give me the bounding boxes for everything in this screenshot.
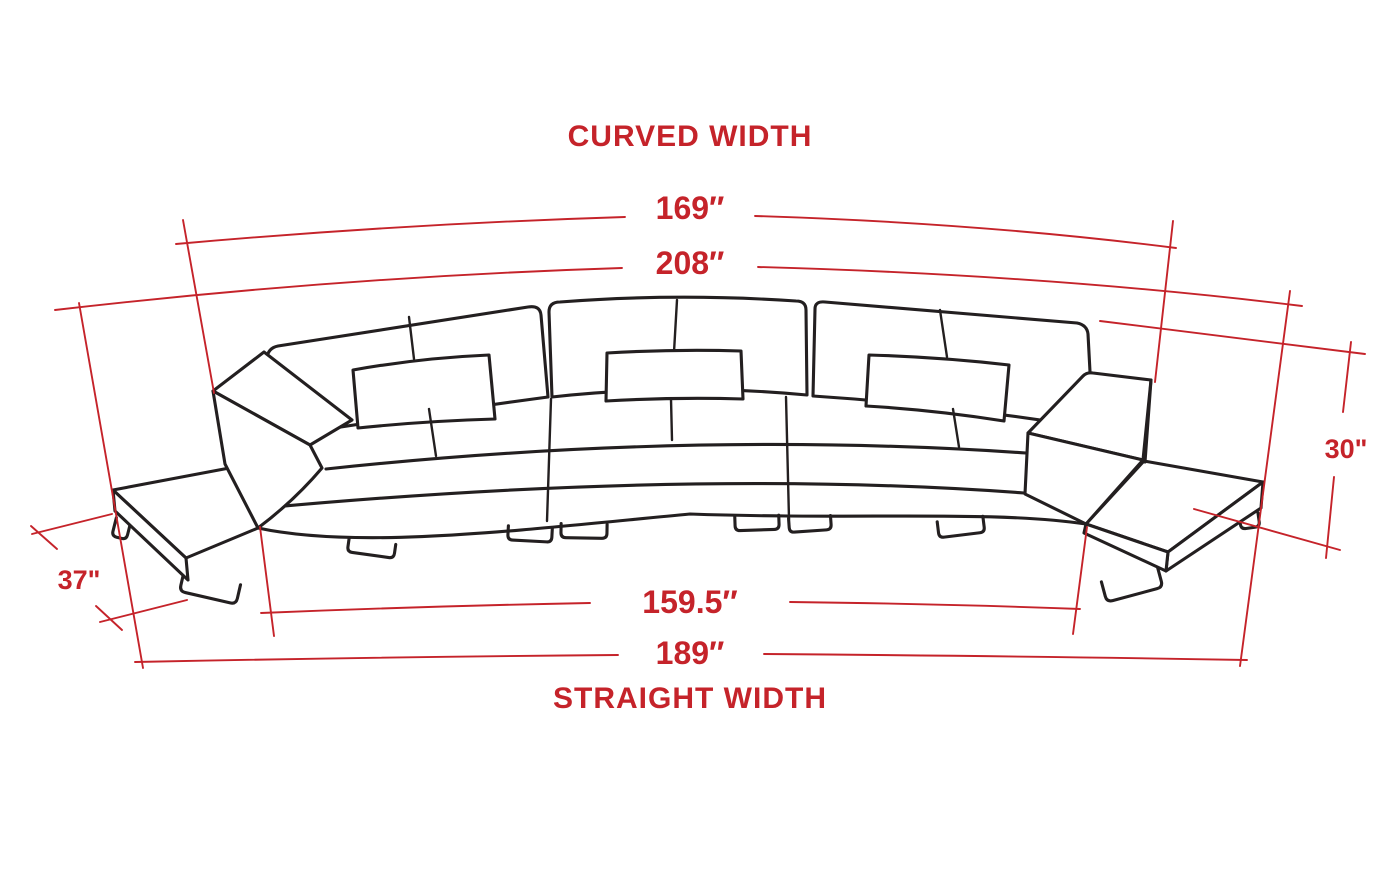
extension-line xyxy=(32,514,112,534)
seat-seam-center xyxy=(671,399,672,440)
curved-inner-value: 169″ xyxy=(656,190,725,226)
sofa-dimension-diagram: CURVED WIDTH 169″ 208″ 30" 37" 159.5″ 18… xyxy=(0,0,1400,875)
lumbar-pillow-left xyxy=(353,355,495,428)
extension-line xyxy=(183,220,214,393)
straight-width-title: STRAIGHT WIDTH xyxy=(553,682,827,715)
dimension-line xyxy=(261,603,590,613)
straight-inner-value: 159.5″ xyxy=(642,584,737,620)
dimension-line xyxy=(55,268,622,310)
lumbar-pillow-right xyxy=(866,355,1009,421)
dimension-line xyxy=(758,267,1302,306)
seat-front-edge xyxy=(326,444,1026,469)
extension-line xyxy=(260,527,274,636)
extension-line xyxy=(1073,527,1087,634)
section-seam-left xyxy=(547,399,551,521)
base-top-edge xyxy=(252,484,1024,509)
extension-line xyxy=(1100,321,1365,354)
curved-width-title: CURVED WIDTH xyxy=(568,120,813,153)
lumbar-pillow-center xyxy=(606,350,743,401)
straight-outer-value: 189″ xyxy=(656,635,725,671)
extension-line xyxy=(100,600,187,622)
dimension-line xyxy=(790,602,1080,609)
curved-outer-value: 208″ xyxy=(656,245,725,281)
dimension-line xyxy=(176,217,625,244)
dimension-line xyxy=(1326,477,1334,558)
foot xyxy=(937,516,985,537)
diagram-canvas: CURVED WIDTH 169″ 208″ 30" 37" 159.5″ 18… xyxy=(0,0,1400,875)
dimension-line xyxy=(755,216,1176,248)
foot xyxy=(735,515,779,531)
foot xyxy=(1101,567,1162,602)
sofa-illustration xyxy=(112,297,1263,604)
foot xyxy=(789,516,832,533)
back-height-value: 30" xyxy=(1325,434,1368,464)
dimension-line xyxy=(135,655,618,662)
end-table-depth-value: 37" xyxy=(58,565,101,595)
foot xyxy=(347,538,395,558)
section-seam-right xyxy=(786,397,789,519)
dimension-line xyxy=(764,654,1247,660)
